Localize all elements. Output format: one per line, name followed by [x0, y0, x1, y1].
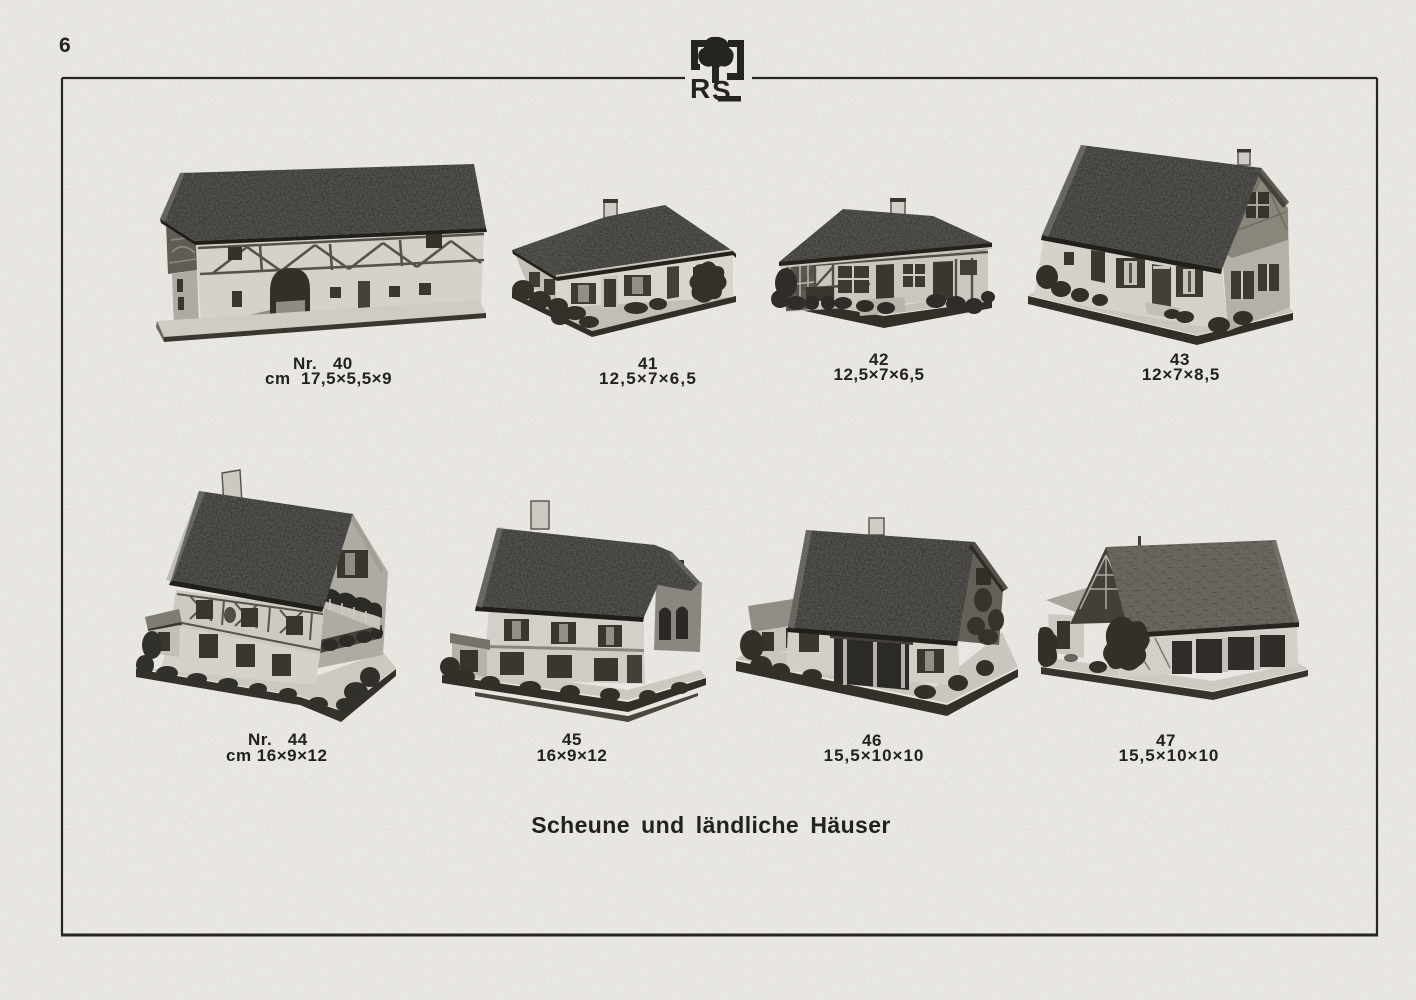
svg-text:12,5×7×6,5: 12,5×7×6,5: [833, 365, 924, 384]
svg-text:16×9×12: 16×9×12: [537, 746, 608, 765]
svg-text:cm 16×9×12: cm 16×9×12: [226, 746, 327, 765]
svg-text:6: 6: [59, 34, 71, 57]
svg-text:12,5×7×6,5: 12,5×7×6,5: [599, 369, 697, 388]
svg-text:cm 17,5×5,5×9: cm 17,5×5,5×9: [265, 369, 392, 388]
svg-text:15,5×10×10: 15,5×10×10: [1119, 746, 1220, 765]
svg-text:15,5×10×10: 15,5×10×10: [824, 746, 925, 765]
svg-text:Scheune und ländliche Häuser: Scheune und ländliche Häuser: [531, 812, 891, 838]
svg-text:R: R: [690, 73, 710, 104]
svg-text:12×7×8,5: 12×7×8,5: [1142, 365, 1220, 384]
